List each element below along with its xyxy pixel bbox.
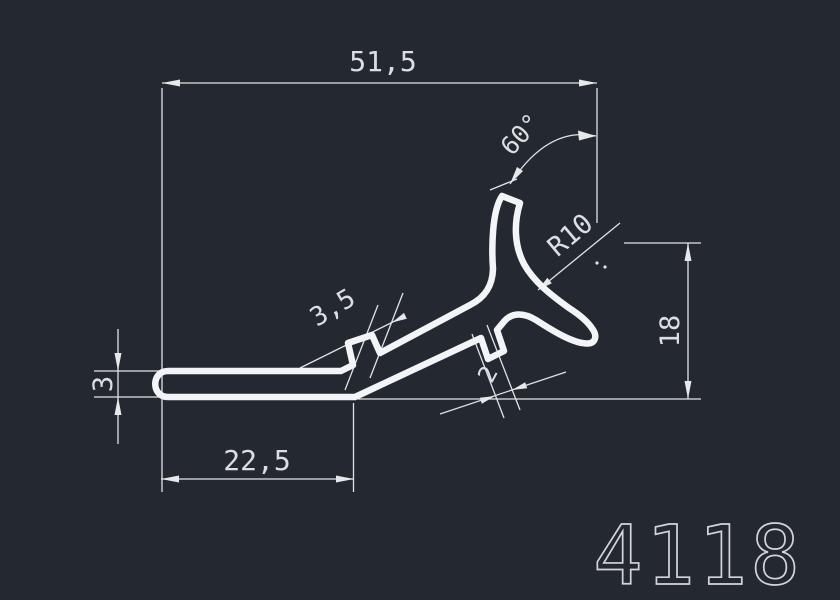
center-mark (595, 261, 598, 264)
dimension-label: 18 (655, 315, 686, 348)
arrowhead (685, 243, 692, 261)
dimension-label: 2 (472, 361, 504, 387)
arrowhead (115, 353, 122, 371)
dimension-base-length: 22,5 (161, 403, 354, 492)
dimension-line (440, 372, 566, 414)
arrowhead (161, 476, 179, 483)
dimension-angle: 60° (490, 108, 596, 190)
profile-outline (155, 196, 595, 397)
dimension-label: 3,5 (305, 283, 361, 333)
dimension-label: 3 (88, 376, 119, 392)
dimension-label: 51,5 (349, 45, 416, 78)
arrowhead (685, 381, 692, 399)
arrowhead (162, 80, 180, 87)
arrowhead (579, 80, 597, 87)
center-mark (603, 265, 606, 268)
arrowhead (115, 397, 122, 415)
cad-model-space: 51,5 22,5 3 18 60° R (0, 0, 840, 600)
dimension-base-thickness: 3 (88, 329, 159, 444)
dimension-height: 18 (358, 243, 701, 399)
arrowhead (578, 131, 596, 141)
dimension-radius: R10 (538, 208, 620, 290)
dimension-label: 60° (495, 108, 547, 161)
part-number: 4118 (593, 509, 802, 600)
dimension-label: 22,5 (223, 444, 290, 477)
arrowhead (480, 396, 495, 404)
dimension-overall-width: 51,5 (162, 45, 597, 492)
arrowhead (512, 382, 527, 390)
dimension-label: R10 (542, 208, 599, 263)
technical-drawing-svg: 51,5 22,5 3 18 60° R (0, 0, 840, 600)
arrowhead (336, 476, 354, 483)
